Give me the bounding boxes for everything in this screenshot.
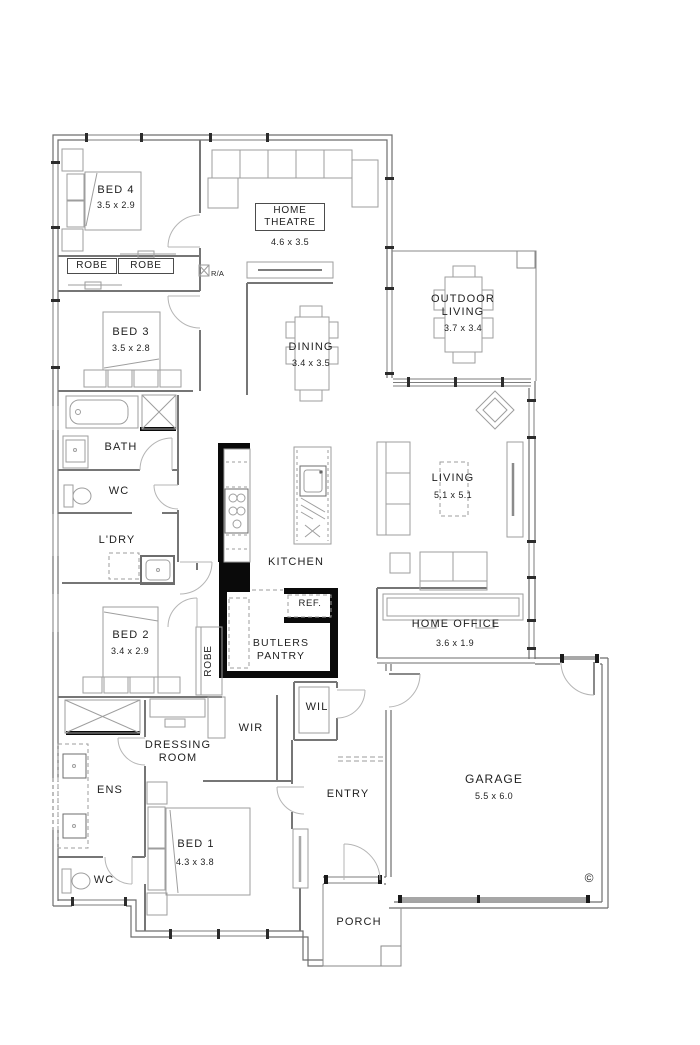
robe-left-label: ROBE <box>67 258 117 274</box>
floor-plan: BED 4 3.5 x 2.9 HOME THEATRE 4.6 x 3.5 R… <box>0 0 700 1045</box>
floorplan-linework <box>0 0 700 1045</box>
tv-unit <box>507 442 523 537</box>
side-table <box>390 553 410 573</box>
room-label-home-office: HOME OFFICE <box>412 618 501 631</box>
copyright-icon: © <box>585 871 594 885</box>
toilet-icon <box>64 485 91 507</box>
robe-right-label: ROBE <box>118 258 174 274</box>
room-label-laundry: L'DRY <box>99 534 136 547</box>
room-label-garage: GARAGE <box>465 772 523 786</box>
garage-access-door <box>389 674 420 707</box>
room-label-dressing-room: DRESSING ROOM <box>138 739 218 765</box>
room-dims-home-theatre: 4.6 x 3.5 <box>271 237 309 248</box>
room-label-porch: PORCH <box>336 916 381 929</box>
room-dims-bed1: 4.3 x 3.8 <box>176 857 214 868</box>
shower-icon <box>142 395 176 429</box>
room-dims-garage: 5.5 x 6.0 <box>475 791 513 802</box>
room-label-bed3: BED 3 <box>112 326 149 339</box>
wc-door <box>154 485 178 509</box>
bed2-robe-label: ROBE <box>203 645 215 677</box>
room-label-bed4: BED 4 <box>97 184 134 197</box>
room-label-bed1: BED 1 <box>177 838 214 851</box>
room-dims-dining: 3.4 x 3.5 <box>292 358 330 369</box>
room-dims-bed3: 3.5 x 2.8 <box>112 343 150 354</box>
bed4-door <box>168 215 200 247</box>
room-label-entry: ENTRY <box>327 788 370 801</box>
room-dims-home-office: 3.6 x 1.9 <box>436 638 474 649</box>
pantry-shelf <box>229 598 249 668</box>
black-walls <box>66 427 338 735</box>
room-label-outdoor-living: OUTDOOR LIVING <box>421 293 505 319</box>
room-dims-living: 5.1 x 5.1 <box>434 490 472 501</box>
living-ottoman <box>476 391 514 429</box>
alfresco-post <box>517 251 535 268</box>
bath-door <box>140 438 172 470</box>
bed2-door <box>168 598 197 627</box>
room-label-ens: ENS <box>97 784 123 797</box>
room-label-wil: WIL <box>306 701 329 714</box>
room-label-dining: DINING <box>288 341 333 354</box>
bed3-door <box>168 296 200 328</box>
theatre-sofa <box>208 150 378 208</box>
ens-vanity <box>58 744 88 848</box>
room-label-bath: BATH <box>105 441 138 454</box>
living-sofa-left <box>377 442 410 535</box>
room-dims-bed2: 3.4 x 2.9 <box>111 646 149 657</box>
wir-shelf <box>208 697 225 738</box>
ens-shower-icon <box>65 700 140 733</box>
room-label-ens-wc: WC <box>94 874 115 887</box>
room-label-wc: WC <box>109 485 130 498</box>
kitchen-island <box>294 447 331 544</box>
garage-side-door <box>561 662 594 695</box>
room-dims-outdoor-living: 3.7 x 3.4 <box>444 323 482 334</box>
room-label-living: LIVING <box>432 472 475 485</box>
room-label-wir: WIR <box>239 722 264 735</box>
room-label-kitchen: KITCHEN <box>268 556 324 569</box>
bath-vanity <box>63 436 88 468</box>
room-dims-bed4: 3.5 x 2.9 <box>97 200 135 211</box>
room-label-home-theatre: HOME THEATRE <box>255 203 325 231</box>
living-sofa-bottom <box>420 552 487 590</box>
wil-door <box>337 690 365 718</box>
ens-toilet-icon <box>62 869 90 893</box>
porch-post <box>381 946 401 966</box>
room-label-butlers-pantry: BUTLERS PANTRY <box>250 637 312 662</box>
bathtub-icon <box>66 396 138 428</box>
dresser <box>150 699 205 727</box>
entry-passage-door <box>277 787 304 814</box>
laundry-bench <box>109 553 174 584</box>
return-air-label: R/A <box>211 269 224 278</box>
tv-cabinet <box>247 262 333 278</box>
entry-sidelight <box>293 829 308 888</box>
fridge-label: REF. <box>299 598 322 609</box>
room-label-bed2: BED 2 <box>112 629 149 642</box>
coffee-table <box>440 462 468 516</box>
kitchen-bench <box>224 449 250 562</box>
